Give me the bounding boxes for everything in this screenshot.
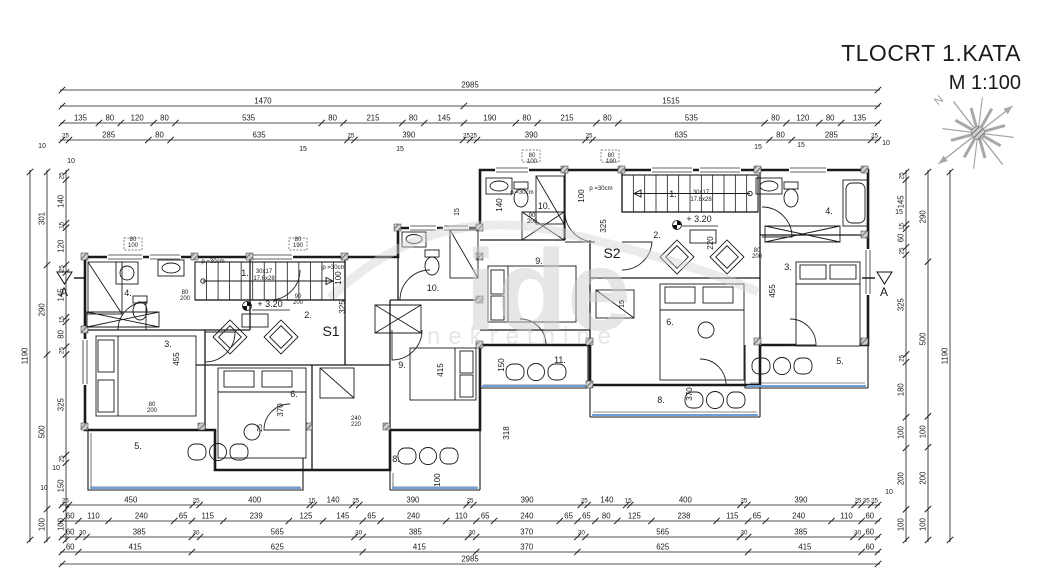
plan-label: 325 bbox=[599, 219, 608, 233]
svg-text:1515: 1515 bbox=[662, 97, 680, 106]
svg-text:120: 120 bbox=[796, 114, 810, 123]
svg-text:500: 500 bbox=[919, 332, 928, 346]
svg-text:25: 25 bbox=[352, 498, 360, 505]
svg-text:nekretnine: nekretnine bbox=[427, 323, 619, 350]
dimension-chain: 290500100200100 bbox=[919, 169, 932, 543]
plan-label: 8. bbox=[657, 395, 665, 405]
svg-text:370: 370 bbox=[520, 543, 534, 552]
plan-label: 30x17 bbox=[693, 190, 710, 196]
svg-text:400: 400 bbox=[679, 496, 693, 505]
svg-text:135: 135 bbox=[853, 114, 867, 123]
svg-text:100: 100 bbox=[919, 517, 928, 531]
plan-label: 240220 bbox=[351, 416, 362, 428]
dimension-chain: 1358012080535802158014519080215805358012… bbox=[59, 114, 881, 127]
svg-text:65: 65 bbox=[481, 512, 490, 521]
svg-text:2985: 2985 bbox=[461, 555, 479, 564]
plan-label: 15 bbox=[797, 142, 805, 149]
stairs bbox=[622, 175, 758, 212]
plan-label: 17.8x28 bbox=[690, 197, 712, 203]
plan-label: p =30cm bbox=[201, 259, 224, 265]
svg-text:65: 65 bbox=[582, 512, 591, 521]
plan-label: 318 bbox=[502, 426, 511, 440]
svg-text:290: 290 bbox=[38, 303, 47, 317]
plan-label: 10 bbox=[67, 158, 75, 165]
plan-label: 15 bbox=[396, 146, 404, 153]
svg-text:115: 115 bbox=[201, 512, 214, 521]
svg-text:25: 25 bbox=[871, 133, 879, 140]
svg-text:290: 290 bbox=[919, 210, 928, 224]
svg-text:370: 370 bbox=[520, 528, 534, 537]
svg-text:100: 100 bbox=[897, 426, 906, 440]
plan-label: 2. bbox=[653, 230, 661, 240]
plan-label: 6. bbox=[290, 389, 298, 399]
plan-label: 17.6x28 bbox=[253, 276, 275, 282]
svg-text:450: 450 bbox=[124, 496, 138, 505]
plan-label: N bbox=[932, 94, 946, 108]
svg-text:635: 635 bbox=[253, 131, 267, 140]
svg-text:15: 15 bbox=[308, 498, 316, 505]
svg-text:1470: 1470 bbox=[254, 97, 272, 106]
svg-text:80: 80 bbox=[776, 131, 785, 140]
plan-label: 25 bbox=[257, 424, 264, 432]
svg-text:240: 240 bbox=[792, 512, 806, 521]
plan-label: 15 bbox=[299, 146, 307, 153]
plan-label: 80100 bbox=[527, 153, 538, 165]
plan-label: 1. bbox=[241, 268, 249, 278]
svg-text:565: 565 bbox=[656, 528, 670, 537]
svg-text:65: 65 bbox=[564, 512, 573, 521]
plan-label: 325 bbox=[338, 300, 347, 314]
plan-label: 8. bbox=[392, 454, 400, 464]
svg-text:390: 390 bbox=[525, 131, 539, 140]
svg-text:25: 25 bbox=[62, 133, 70, 140]
svg-text:25: 25 bbox=[581, 498, 589, 505]
svg-text:180: 180 bbox=[897, 383, 906, 397]
svg-text:200: 200 bbox=[919, 471, 928, 485]
svg-text:125: 125 bbox=[628, 512, 642, 521]
svg-text:390: 390 bbox=[406, 496, 420, 505]
svg-text:535: 535 bbox=[685, 114, 699, 123]
svg-text:30: 30 bbox=[854, 530, 862, 537]
svg-text:240: 240 bbox=[520, 512, 534, 521]
plan-label: 10 bbox=[40, 485, 48, 492]
svg-text:110: 110 bbox=[87, 512, 100, 521]
plan-label: A bbox=[880, 285, 888, 299]
dimension-chain: 2514515602532525180100200100 bbox=[897, 169, 910, 543]
plan-label: 455 bbox=[172, 352, 181, 366]
plan-label: 15 bbox=[895, 209, 903, 216]
svg-text:60: 60 bbox=[865, 543, 874, 552]
svg-text:215: 215 bbox=[561, 114, 575, 123]
svg-text:25: 25 bbox=[193, 498, 201, 505]
svg-text:25: 25 bbox=[899, 247, 906, 255]
svg-text:100: 100 bbox=[897, 518, 906, 532]
dimension-chain: 2985 bbox=[59, 555, 881, 568]
dimension-chain: 2528580635253902525390256358028525 bbox=[59, 131, 881, 144]
svg-text:80: 80 bbox=[155, 131, 164, 140]
svg-text:565: 565 bbox=[271, 528, 285, 537]
plan-label: 100 bbox=[577, 189, 586, 203]
plan-label: 100 bbox=[334, 271, 343, 285]
svg-text:500: 500 bbox=[38, 425, 47, 439]
svg-text:239: 239 bbox=[250, 512, 263, 521]
svg-text:635: 635 bbox=[674, 131, 688, 140]
svg-text:2985: 2985 bbox=[461, 81, 479, 90]
svg-text:80: 80 bbox=[57, 329, 66, 338]
svg-text:15: 15 bbox=[59, 316, 66, 324]
svg-text:285: 285 bbox=[102, 131, 116, 140]
plan-label: 80200 bbox=[180, 290, 191, 302]
svg-text:60: 60 bbox=[66, 512, 75, 521]
svg-text:25: 25 bbox=[59, 455, 66, 463]
svg-text:415: 415 bbox=[129, 543, 143, 552]
plan-label: 10 bbox=[885, 489, 893, 496]
svg-text:25: 25 bbox=[59, 347, 66, 355]
svg-text:385: 385 bbox=[794, 528, 808, 537]
svg-text:30: 30 bbox=[79, 530, 87, 537]
svg-text:215: 215 bbox=[366, 114, 380, 123]
plan-label: + 3.20 bbox=[257, 299, 282, 309]
plan-label: 455 bbox=[768, 284, 777, 298]
plan-label: 4. bbox=[825, 206, 833, 216]
plan-label: 9. bbox=[535, 256, 543, 266]
svg-text:415: 415 bbox=[413, 543, 427, 552]
svg-text:65: 65 bbox=[179, 512, 188, 521]
plan-label: p =30cm bbox=[589, 186, 612, 192]
dimension-chain: 25140151202514515802532525150100 bbox=[57, 169, 70, 543]
svg-text:140: 140 bbox=[327, 496, 341, 505]
svg-text:25: 25 bbox=[871, 498, 879, 505]
svg-text:80: 80 bbox=[409, 114, 418, 123]
svg-text:25: 25 bbox=[899, 172, 906, 180]
svg-text:390: 390 bbox=[402, 131, 416, 140]
dimension-chain: 2545025400151402539025390251401540025390… bbox=[59, 496, 881, 509]
plan-label: 10. bbox=[538, 201, 551, 211]
svg-text:80: 80 bbox=[826, 114, 835, 123]
watermark-text: idenekretnine bbox=[427, 227, 631, 355]
plan-label: 9. bbox=[398, 360, 406, 370]
plan-label: 3. bbox=[164, 339, 172, 349]
svg-text:535: 535 bbox=[242, 114, 256, 123]
svg-text:145: 145 bbox=[897, 195, 906, 209]
svg-text:120: 120 bbox=[57, 239, 66, 253]
svg-text:1190: 1190 bbox=[941, 347, 950, 364]
svg-text:65: 65 bbox=[367, 512, 376, 521]
drawing-title: TLOCRT 1.KATA bbox=[841, 40, 1021, 67]
dimension-chain: 603038530565303853037030565303853060 bbox=[59, 528, 881, 541]
plan-label: 415 bbox=[436, 363, 445, 377]
svg-text:110: 110 bbox=[840, 512, 853, 521]
svg-text:25: 25 bbox=[586, 133, 594, 140]
plan-label: 80200 bbox=[752, 248, 763, 260]
svg-text:80: 80 bbox=[771, 114, 780, 123]
svg-text:60: 60 bbox=[66, 543, 75, 552]
svg-text:145: 145 bbox=[438, 114, 452, 123]
svg-text:390: 390 bbox=[794, 496, 808, 505]
plan-label: 4. bbox=[124, 288, 132, 298]
svg-text:145: 145 bbox=[336, 512, 350, 521]
svg-text:115: 115 bbox=[726, 512, 739, 521]
plan-label: 10 bbox=[882, 140, 890, 147]
svg-text:390: 390 bbox=[521, 496, 535, 505]
svg-text:65: 65 bbox=[753, 512, 762, 521]
svg-text:135: 135 bbox=[74, 114, 88, 123]
svg-text:60: 60 bbox=[865, 512, 874, 521]
plan-label: S1 bbox=[322, 323, 339, 339]
plan-label: 30x17 bbox=[256, 269, 273, 275]
plan-label: 3. bbox=[784, 262, 792, 272]
plan-label: 15 bbox=[454, 208, 461, 216]
plan-label: 100 bbox=[433, 473, 442, 487]
svg-text:110: 110 bbox=[455, 512, 468, 521]
svg-text:25: 25 bbox=[59, 265, 66, 273]
svg-text:80: 80 bbox=[522, 114, 531, 123]
plan-label: 90200 bbox=[293, 294, 304, 306]
svg-text:385: 385 bbox=[409, 528, 423, 537]
svg-text:80: 80 bbox=[105, 114, 114, 123]
plan-label: 10 bbox=[38, 143, 46, 150]
svg-text:238: 238 bbox=[677, 512, 690, 521]
svg-text:190: 190 bbox=[483, 114, 497, 123]
svg-text:140: 140 bbox=[600, 496, 614, 505]
svg-text:30: 30 bbox=[741, 530, 749, 537]
plan-label: 80190 bbox=[606, 153, 617, 165]
svg-text:60: 60 bbox=[897, 233, 906, 242]
plan-label: 6. bbox=[666, 317, 674, 327]
svg-text:25: 25 bbox=[899, 354, 906, 362]
dimension-chain: 1190 bbox=[941, 169, 954, 543]
svg-text:15: 15 bbox=[59, 221, 66, 229]
svg-text:120: 120 bbox=[131, 114, 145, 123]
svg-text:60: 60 bbox=[66, 528, 75, 537]
svg-text:301: 301 bbox=[38, 212, 47, 225]
plan-label: 11. bbox=[554, 355, 566, 365]
svg-text:25: 25 bbox=[470, 133, 478, 140]
plan-label: 15 bbox=[619, 300, 626, 308]
plan-label: 220 bbox=[706, 236, 715, 250]
svg-text:200: 200 bbox=[897, 472, 906, 486]
plan-label: 140 bbox=[495, 198, 504, 212]
svg-text:625: 625 bbox=[271, 543, 285, 552]
svg-text:100: 100 bbox=[919, 425, 928, 439]
svg-text:25: 25 bbox=[59, 172, 66, 180]
svg-text:15: 15 bbox=[899, 222, 906, 230]
title-block: TLOCRT 1.KATA M 1:100 bbox=[841, 40, 1021, 95]
svg-text:80: 80 bbox=[160, 114, 169, 123]
plan-label: 10. bbox=[427, 283, 440, 293]
plan-label: 10 bbox=[52, 465, 60, 472]
plan-label: + 3.20 bbox=[686, 214, 711, 224]
dimension-chain: 6041562541537062541560 bbox=[59, 543, 881, 556]
floorplan-page: { "title": {"main": "TLOCRT 1.KATA", "sc… bbox=[0, 0, 1045, 571]
svg-text:60: 60 bbox=[865, 528, 874, 537]
plan-label: 370 bbox=[685, 387, 694, 401]
svg-text:30: 30 bbox=[192, 530, 200, 537]
plan-label: p =30cm bbox=[510, 190, 533, 196]
svg-text:625: 625 bbox=[656, 543, 670, 552]
plan-label: S2 bbox=[603, 245, 620, 261]
svg-text:30: 30 bbox=[469, 530, 477, 537]
svg-text:35: 35 bbox=[863, 498, 871, 505]
svg-text:30: 30 bbox=[355, 530, 363, 537]
svg-text:400: 400 bbox=[248, 496, 262, 505]
plan-label: 150 bbox=[497, 358, 506, 372]
svg-text:240: 240 bbox=[407, 512, 421, 521]
plan-label: 370 bbox=[276, 403, 285, 417]
svg-text:15: 15 bbox=[625, 498, 633, 505]
drawing-scale: M 1:100 bbox=[841, 72, 1021, 95]
svg-text:25: 25 bbox=[466, 498, 474, 505]
svg-text:100: 100 bbox=[57, 517, 66, 531]
svg-text:125: 125 bbox=[299, 512, 313, 521]
svg-text:25: 25 bbox=[855, 498, 863, 505]
plan-label: 80100 bbox=[128, 237, 139, 249]
svg-text:25: 25 bbox=[347, 133, 355, 140]
svg-text:240: 240 bbox=[135, 512, 149, 521]
svg-text:30: 30 bbox=[578, 530, 586, 537]
svg-text:1190: 1190 bbox=[21, 347, 30, 364]
plan-label: 1. bbox=[669, 189, 677, 199]
plan-label: 5. bbox=[836, 356, 844, 366]
plan-label: 5. bbox=[134, 441, 142, 451]
svg-text:80: 80 bbox=[603, 114, 612, 123]
svg-text:140: 140 bbox=[57, 194, 66, 208]
svg-text:100: 100 bbox=[38, 517, 47, 531]
dimension-chain: 2985 bbox=[59, 81, 881, 94]
svg-text:325: 325 bbox=[57, 398, 66, 412]
plan-label: 2. bbox=[304, 310, 312, 320]
svg-text:285: 285 bbox=[825, 131, 839, 140]
plan-label: p =30cm bbox=[322, 265, 345, 271]
dimension-chain: 14701515 bbox=[59, 97, 881, 110]
plan-label: 80190 bbox=[293, 237, 304, 249]
plan-label: 15 bbox=[754, 144, 762, 151]
dimension-chain: 6011024065115239125145652401106524065658… bbox=[59, 512, 881, 525]
svg-text:150: 150 bbox=[57, 479, 66, 493]
terrace-edge-lines bbox=[90, 386, 866, 488]
svg-text:415: 415 bbox=[798, 543, 812, 552]
svg-text:25: 25 bbox=[740, 498, 748, 505]
svg-text:325: 325 bbox=[897, 297, 906, 311]
svg-text:385: 385 bbox=[133, 528, 147, 537]
plan-label: A bbox=[60, 285, 68, 299]
svg-text:80: 80 bbox=[328, 114, 337, 123]
dimension-chain: 1190 bbox=[21, 169, 34, 543]
svg-text:80: 80 bbox=[602, 512, 611, 521]
